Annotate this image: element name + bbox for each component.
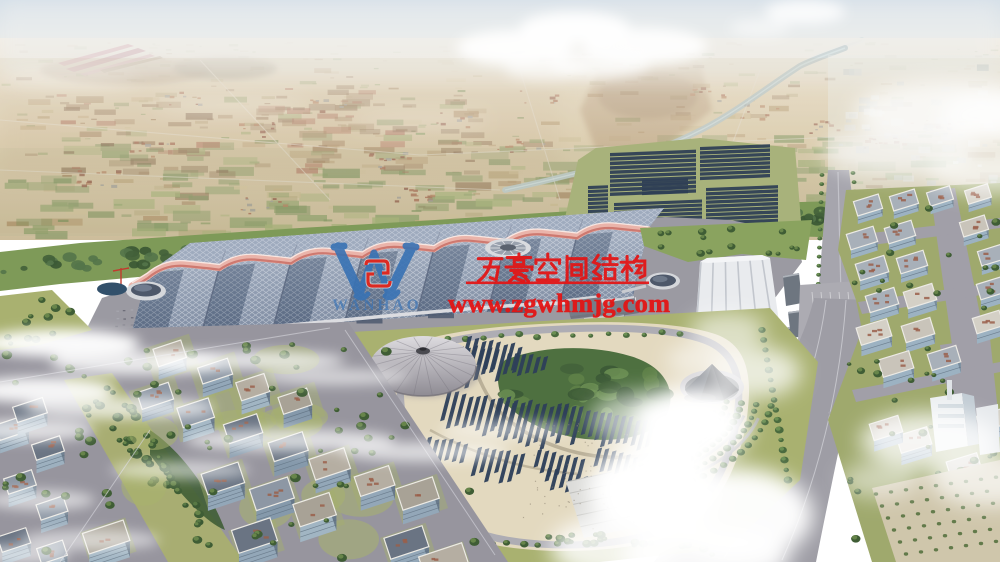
- svg-text:www.zgwhmjg.com: www.zgwhmjg.com: [448, 288, 670, 318]
- svg-text:WANHAO: WANHAO: [332, 297, 421, 314]
